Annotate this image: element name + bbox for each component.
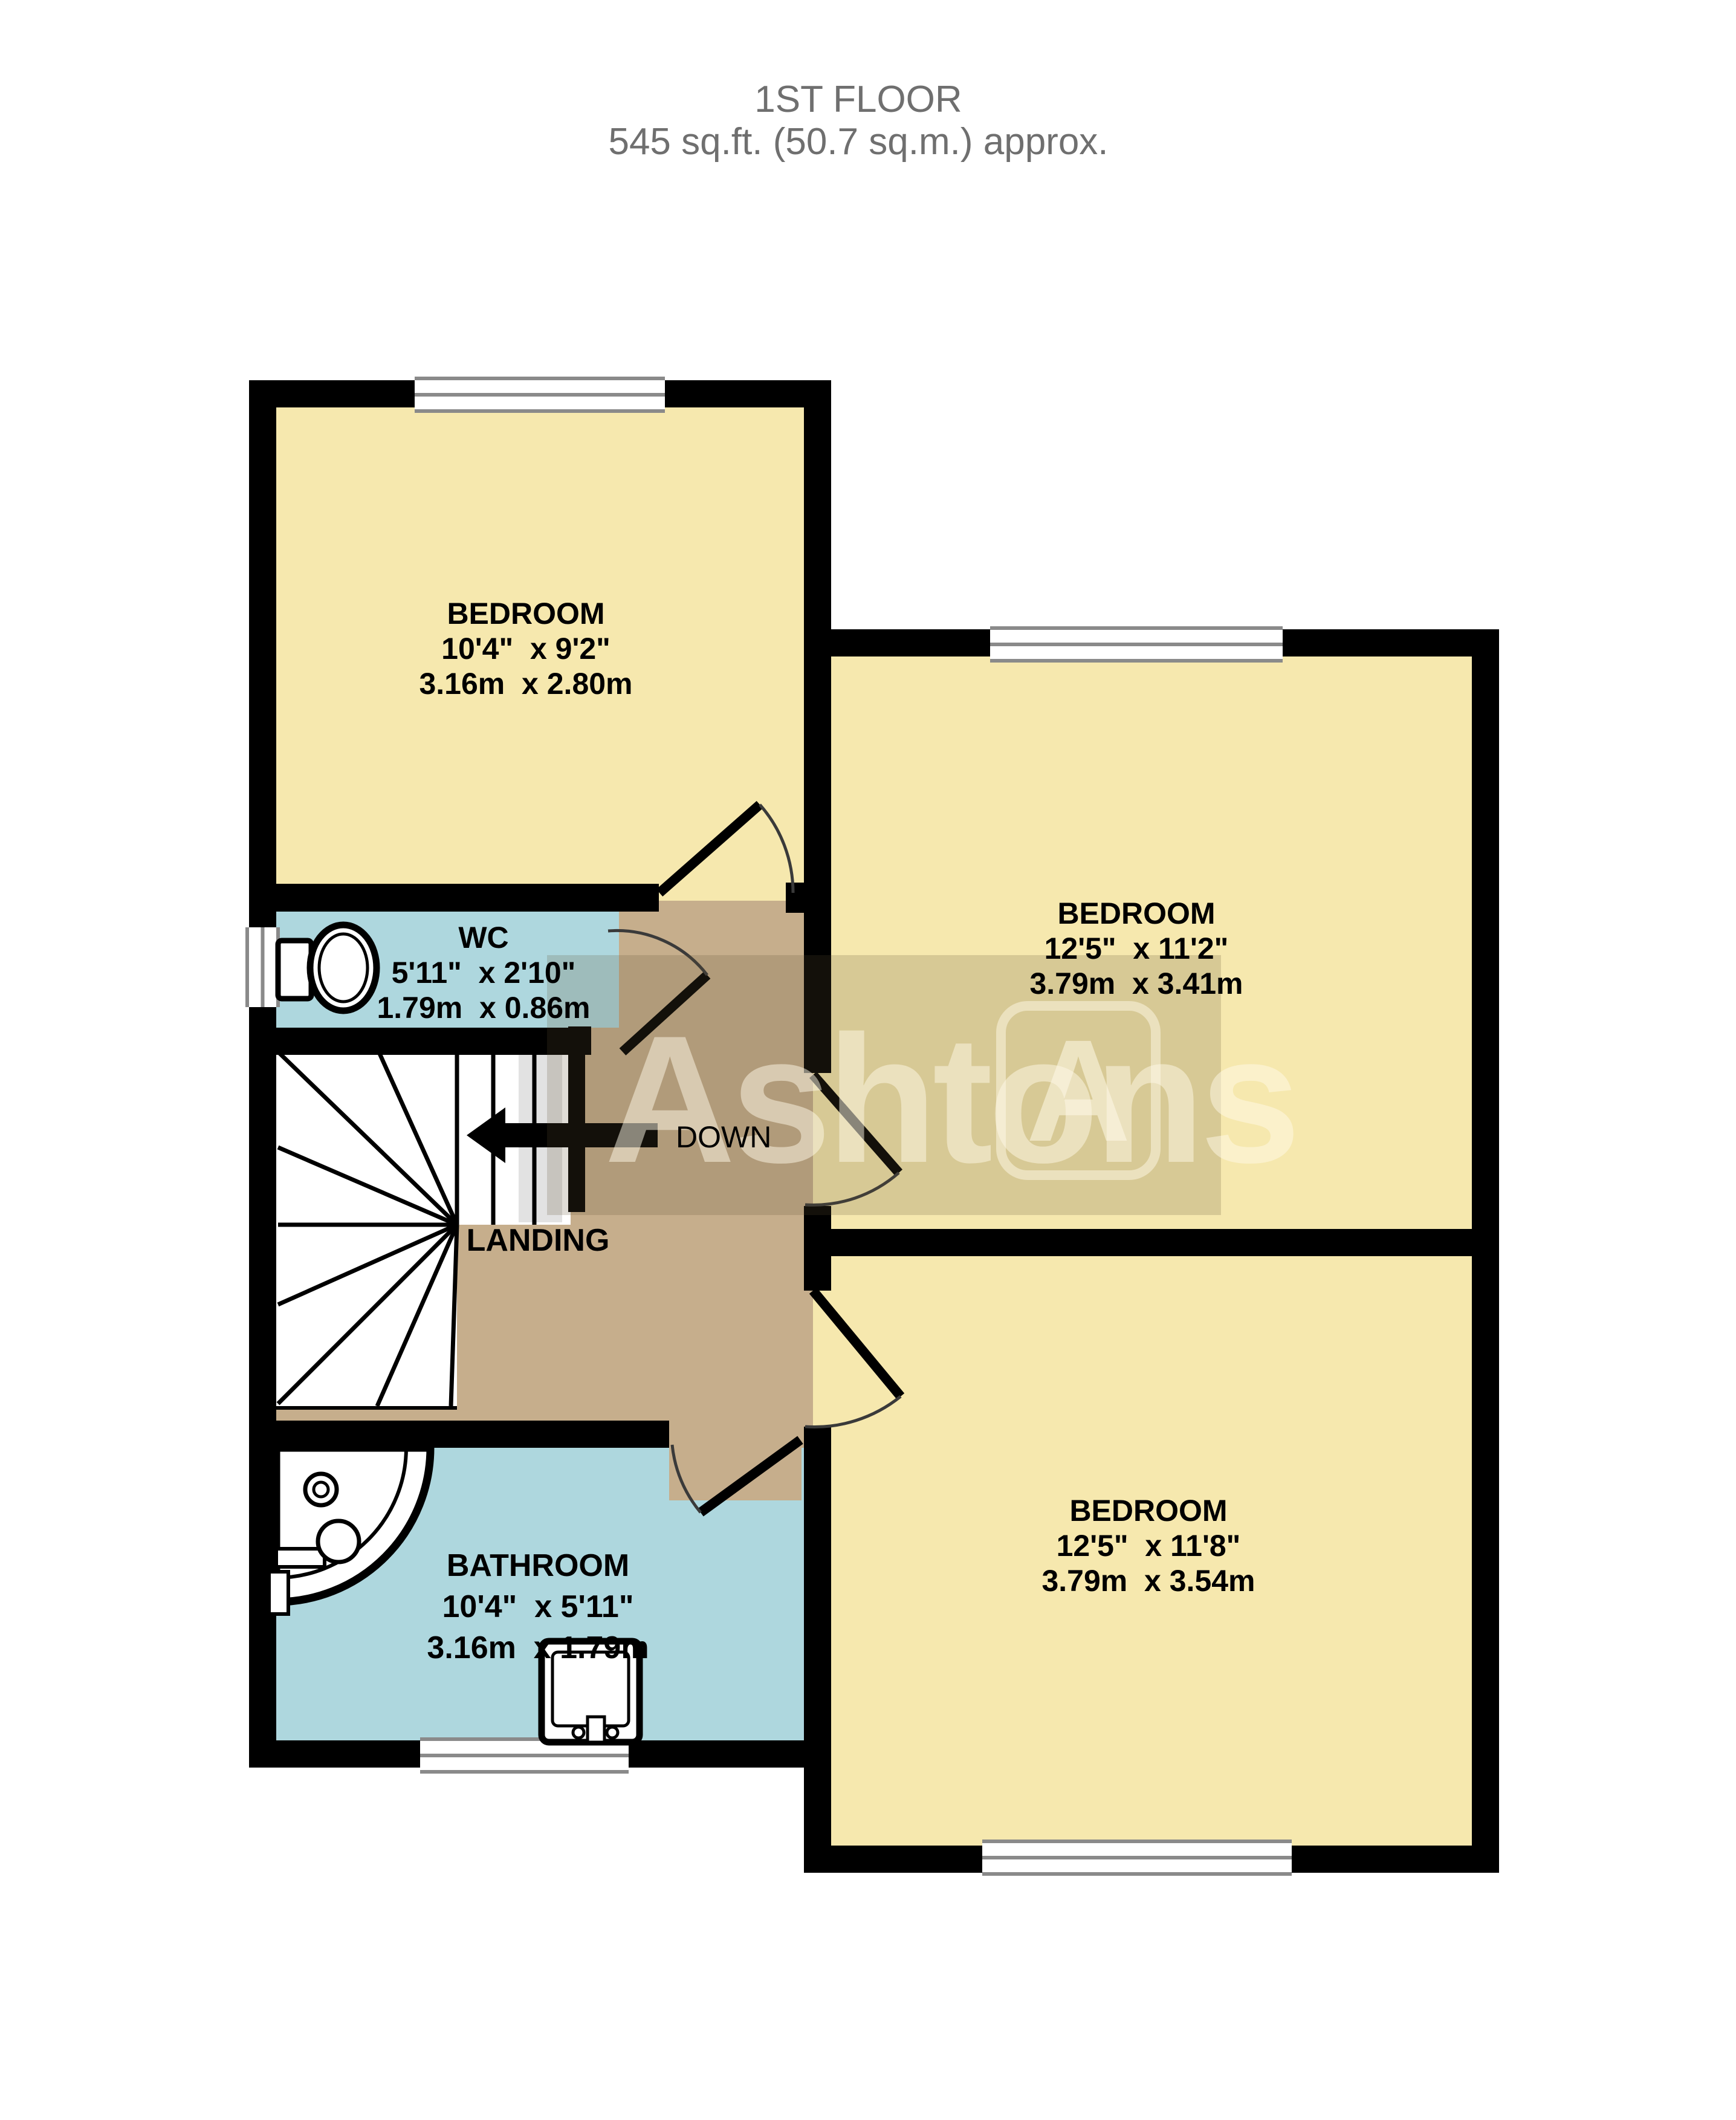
plan-title: 1ST FLOOR 545 sq.ft. (50.7 sq.m.) approx… (608, 79, 1108, 163)
wall-bathroom-top (249, 1421, 669, 1448)
wall-between-bedrooms-2-3 (823, 1229, 1472, 1256)
room-name: BEDROOM (1069, 1494, 1227, 1528)
window-bedroom-3-bottom (982, 1840, 1292, 1876)
wall-bedroom1-bottom (249, 884, 659, 912)
floor-bathroom-threshold (669, 1421, 802, 1500)
window-bedroom-1-top (415, 377, 665, 413)
watermark-text: Ashtons (604, 1008, 1296, 1190)
room-name: WC (458, 921, 508, 955)
room-dims-metric: 1.79m x 0.86m (377, 991, 590, 1025)
room-name: BEDROOM (447, 597, 604, 630)
floorplan-canvas: 1ST FLOOR 545 sq.ft. (50.7 sq.m.) approx… (0, 0, 1736, 2120)
room-dims-imperial: 10'4" x 5'11" (442, 1589, 634, 1624)
wall-outer-right (1472, 629, 1499, 1873)
label-bedroom-1: BEDROOM 10'4" x 9'2" 3.16m x 2.80m (419, 596, 632, 701)
room-dims-imperial: 10'4" x 9'2" (441, 632, 611, 666)
room-dims-imperial: 12'5" x 11'2" (1045, 932, 1229, 965)
wall-bedroom1-door-jamb (786, 883, 804, 913)
window-bathroom-bottom (420, 1737, 629, 1774)
watermark-logo-letter: A (1026, 1018, 1130, 1163)
room-dims-imperial: 12'5" x 11'8" (1057, 1529, 1241, 1563)
watermark-logo: A (996, 1001, 1161, 1180)
room-dims-metric: 3.16m x 2.80m (419, 667, 632, 701)
window-wc-left (245, 927, 280, 1007)
label-bedroom-3: BEDROOM 12'5" x 11'8" 3.79m x 3.54m (1041, 1493, 1255, 1598)
plan-title-line1: 1ST FLOOR (754, 79, 962, 120)
room-dims-metric: 3.79m x 3.54m (1041, 1564, 1255, 1598)
wall-center-vertical-lower (804, 1427, 831, 1873)
window-bedroom-2-top (990, 626, 1283, 663)
floor-bedroom-3-doorway (813, 1291, 831, 1427)
label-bathroom: BATHROOM 10'4" x 5'11" 3.16m x 1.79m (427, 1545, 649, 1668)
wall-outer-left (249, 380, 276, 1768)
plan-title-line2: 545 sq.ft. (50.7 sq.m.) approx. (608, 121, 1108, 163)
label-down: DOWN (676, 1120, 771, 1155)
room-dims-metric: 3.79m x 3.41m (1029, 967, 1243, 1000)
room-name: BEDROOM (1057, 896, 1215, 930)
label-landing: LANDING (417, 1222, 659, 1259)
room-dims-metric: 3.16m x 1.79m (427, 1630, 649, 1665)
label-wc: WC 5'11" x 2'10" 1.79m x 0.86m (377, 920, 590, 1025)
label-bedroom-2: BEDROOM 12'5" x 11'2" 3.79m x 3.41m (1029, 896, 1243, 1001)
room-name: BATHROOM (447, 1548, 629, 1583)
wall-wc-bottom (249, 1028, 580, 1055)
room-dims-imperial: 5'11" x 2'10" (392, 956, 576, 990)
